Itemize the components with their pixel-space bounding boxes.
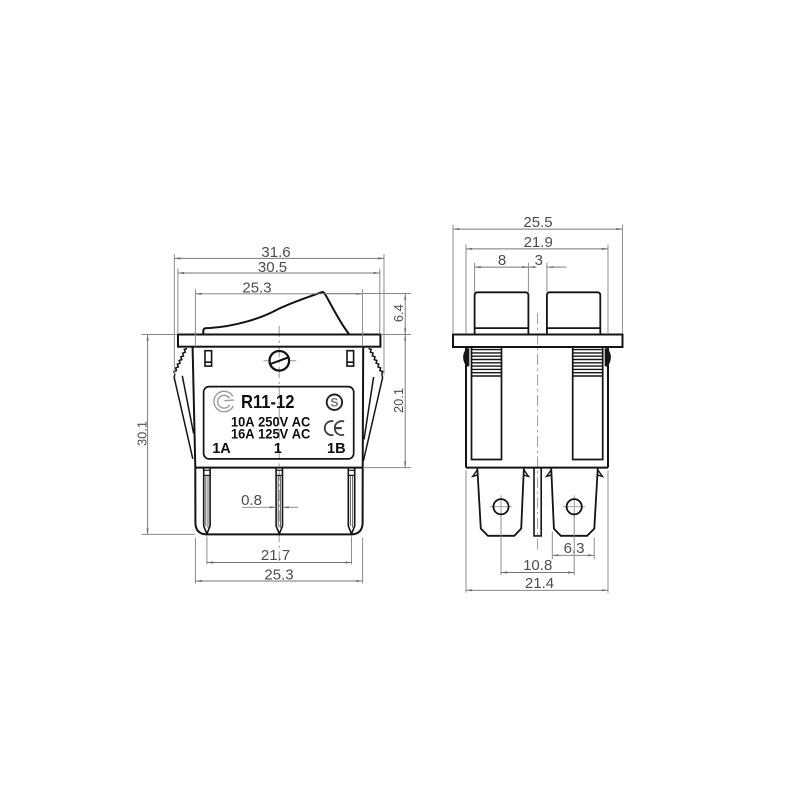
svg-text:1B: 1B <box>327 441 346 457</box>
svg-text:S: S <box>330 396 338 410</box>
svg-text:1: 1 <box>274 441 282 457</box>
svg-text:10.8: 10.8 <box>523 557 552 574</box>
svg-text:30.5: 30.5 <box>258 259 287 276</box>
svg-text:1A: 1A <box>212 441 231 457</box>
svg-text:R11-12: R11-12 <box>241 391 295 412</box>
svg-text:25.5: 25.5 <box>523 214 552 231</box>
svg-text:21.4: 21.4 <box>525 575 554 592</box>
svg-text:30.1: 30.1 <box>134 421 149 446</box>
svg-text:21.9: 21.9 <box>524 234 553 251</box>
svg-text:25.3: 25.3 <box>264 566 293 583</box>
svg-text:20.1: 20.1 <box>391 388 406 413</box>
svg-text:21.7: 21.7 <box>261 547 290 564</box>
svg-text:25.3: 25.3 <box>242 280 271 297</box>
svg-text:0.8: 0.8 <box>241 492 262 509</box>
svg-text:8: 8 <box>498 252 506 269</box>
svg-text:6.4: 6.4 <box>391 304 406 322</box>
svg-text:3: 3 <box>535 252 543 269</box>
svg-text:16A 125V AC: 16A 125V AC <box>231 427 310 442</box>
